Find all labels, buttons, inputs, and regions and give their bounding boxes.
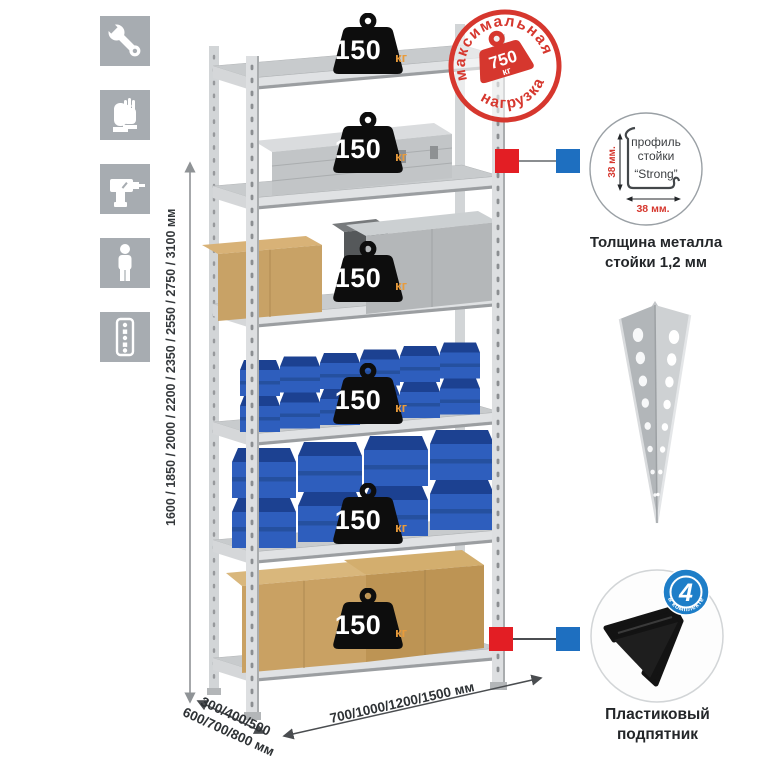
profile-caption: Толщина металла стойки 1,2 мм bbox=[578, 233, 734, 272]
shelf-load-weight-5: 150кг bbox=[320, 483, 416, 549]
shelf-load-weight-2: 150кг bbox=[320, 112, 416, 178]
weight-unit: кг bbox=[395, 278, 407, 293]
included-count-badge: 4 в комплекте bbox=[663, 569, 709, 615]
weight-value: 150 bbox=[322, 263, 394, 294]
shelf-load-weight-6: 150кг bbox=[320, 588, 416, 654]
foot-caption: Пластиковый подпятник bbox=[585, 705, 730, 745]
weight-value: 150 bbox=[322, 134, 394, 165]
weight-unit: кг bbox=[395, 625, 407, 640]
shelf-load-weight-1: 150кг bbox=[320, 13, 416, 79]
shelf-load-weight-4: 150кг bbox=[320, 363, 416, 429]
profile-label-line2: стойки bbox=[638, 149, 675, 163]
foot-caption-line1: Пластиковый bbox=[585, 705, 730, 725]
weight-value: 150 bbox=[322, 35, 394, 66]
profile-caption-line1: Толщина металла bbox=[578, 233, 734, 253]
weight-value: 150 bbox=[322, 610, 394, 641]
profile-caption-line2: стойки 1,2 мм bbox=[578, 253, 734, 273]
product-infographic: 150кг 150кг 150кг 150кг 150кг bbox=[0, 0, 765, 765]
profile-dim-vertical: 38 мм. bbox=[607, 146, 618, 178]
badge-value: 4 bbox=[678, 579, 693, 607]
weight-value: 150 bbox=[322, 505, 394, 536]
cardboard-box-small bbox=[202, 236, 322, 321]
weight-value: 150 bbox=[322, 385, 394, 416]
shelf-load-weight-3: 150кг bbox=[320, 241, 416, 307]
profile-callout-red-marker bbox=[495, 149, 519, 173]
weight-unit: кг bbox=[395, 520, 407, 535]
rack-front-left-upright bbox=[244, 56, 261, 720]
weight-unit: кг bbox=[395, 149, 407, 164]
foot-caption-line2: подпятник bbox=[585, 725, 730, 745]
corner-post-image bbox=[598, 295, 708, 535]
weight-unit: кг bbox=[395, 400, 407, 415]
profile-dim-horizontal: 38 мм. bbox=[636, 203, 669, 215]
profile-label-line1: профиль bbox=[631, 135, 681, 149]
height-dimension-label: 1600 / 1850 / 2000 / 2200 / 2350 / 2550 … bbox=[160, 206, 182, 528]
foot-callout-circle: 4 в комплекте bbox=[588, 566, 728, 708]
profile-callout-circle: 38 мм. 38 мм. профиль стойки “Strong” bbox=[586, 109, 706, 229]
weight-unit: кг bbox=[395, 50, 407, 65]
foot-callout-red-marker bbox=[489, 627, 513, 651]
profile-label-line3: “Strong” bbox=[634, 167, 677, 181]
foot-callout-blue-marker bbox=[556, 627, 580, 651]
profile-callout-blue-marker bbox=[556, 149, 580, 173]
